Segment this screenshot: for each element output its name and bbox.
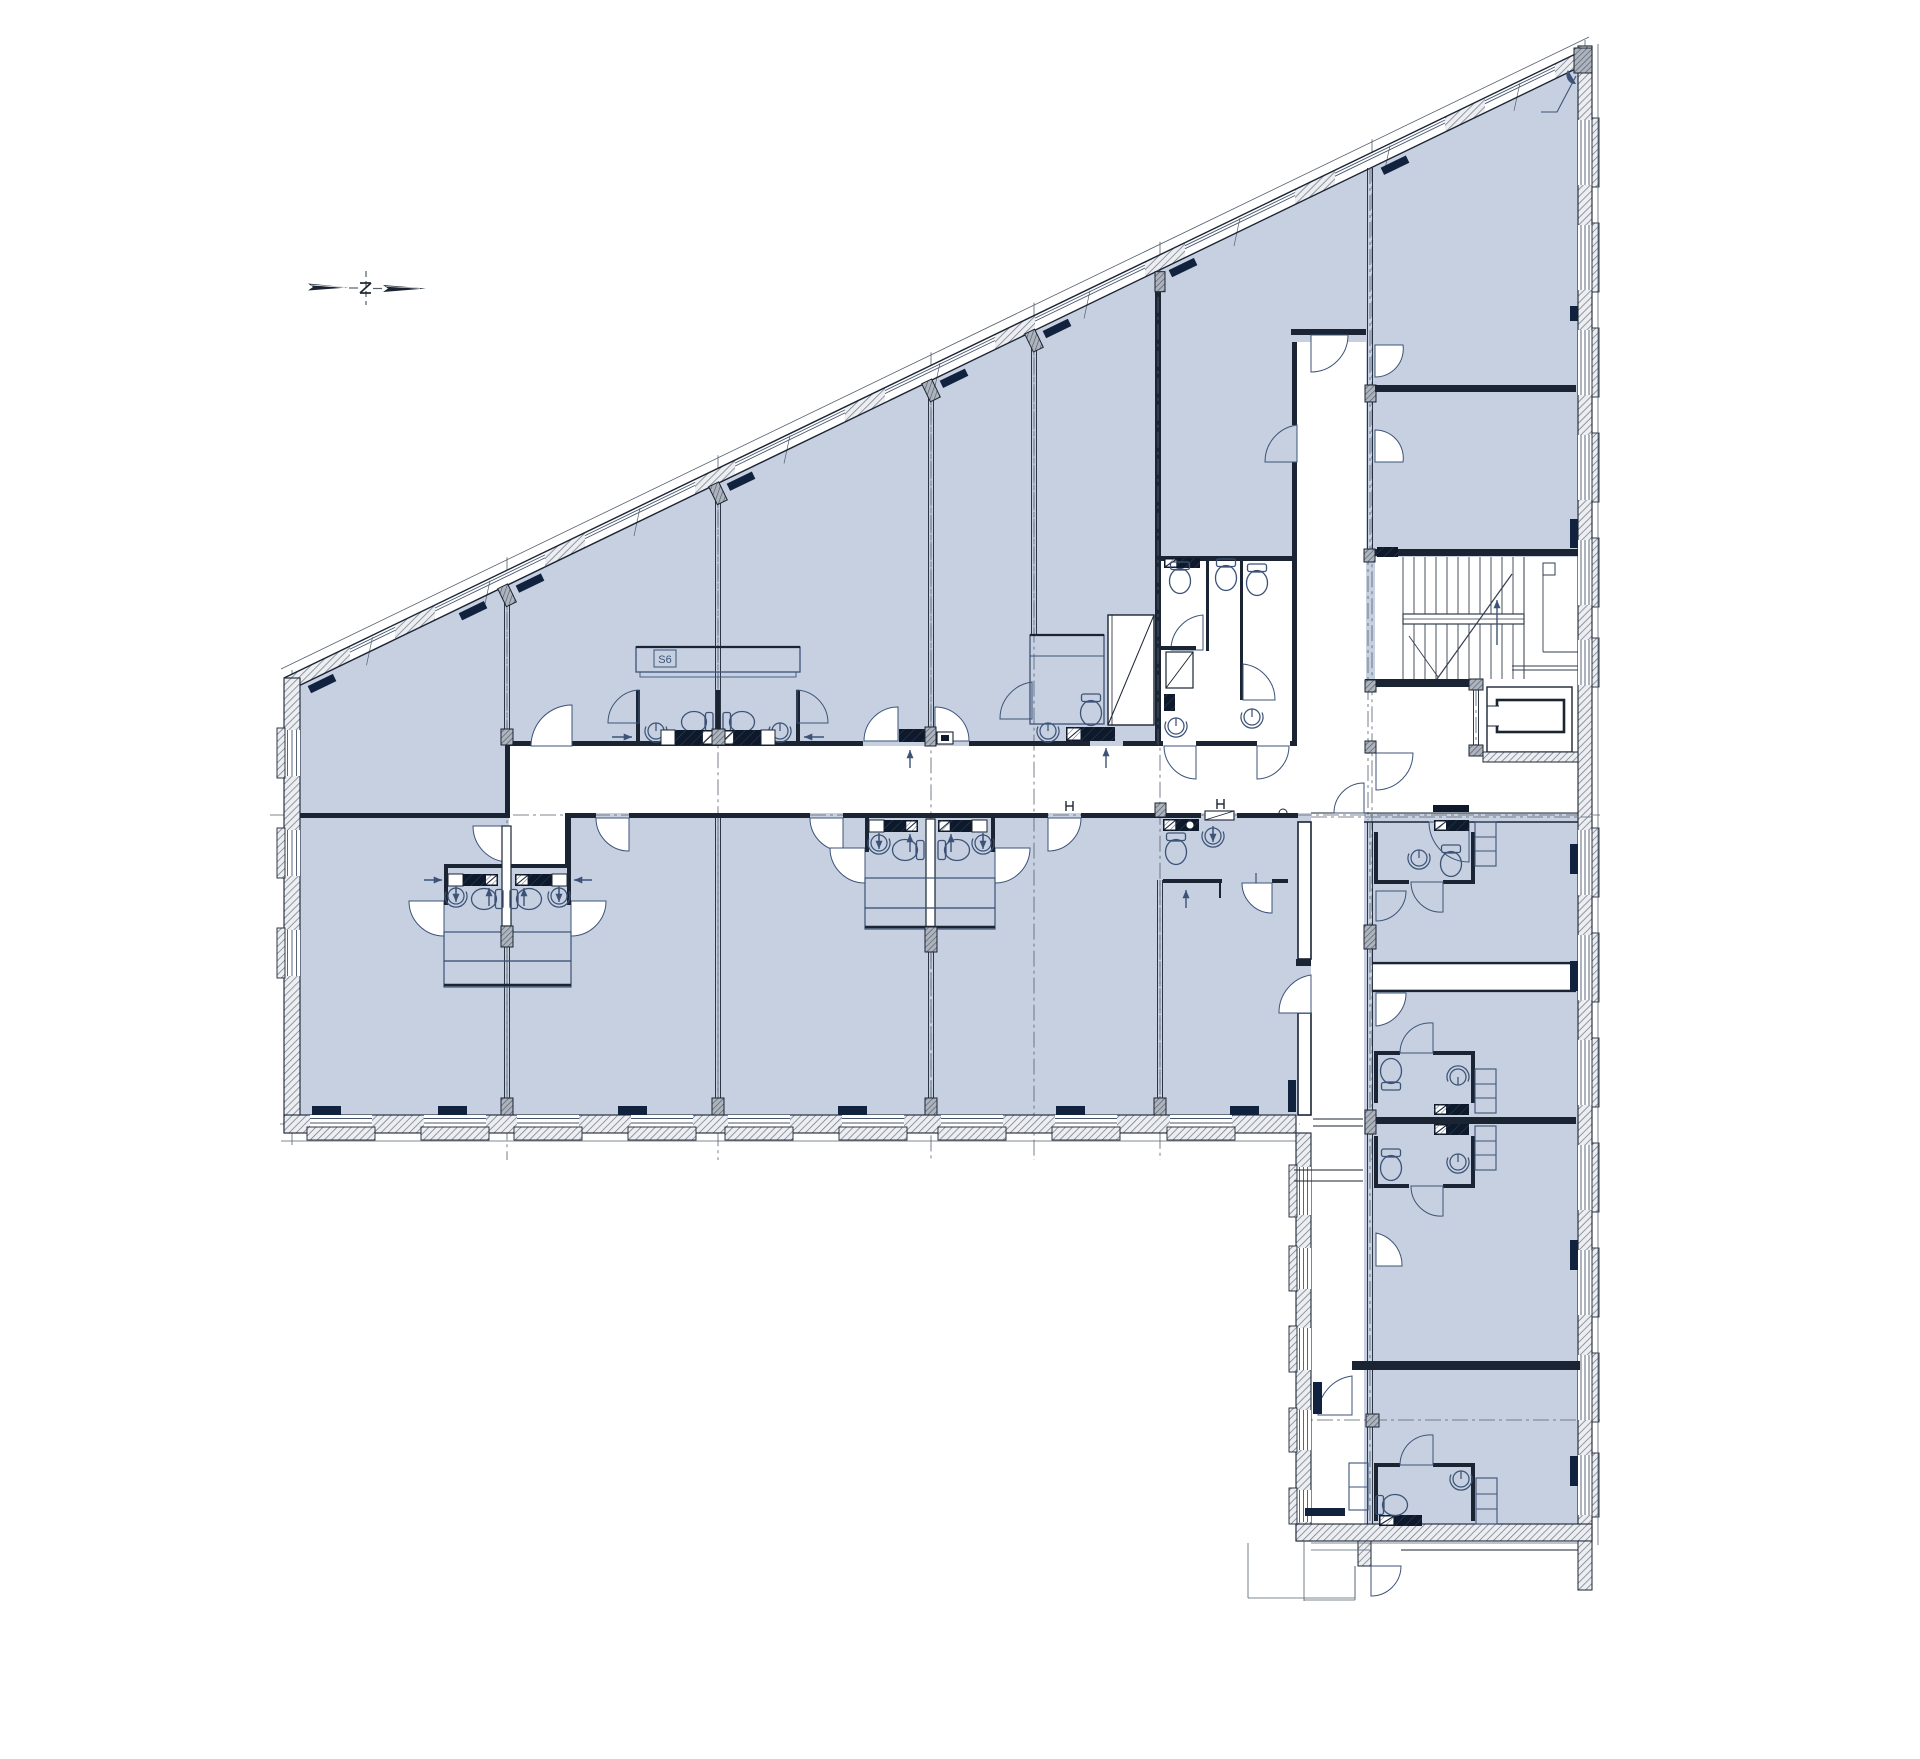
svg-text:S6: S6 (658, 654, 671, 666)
